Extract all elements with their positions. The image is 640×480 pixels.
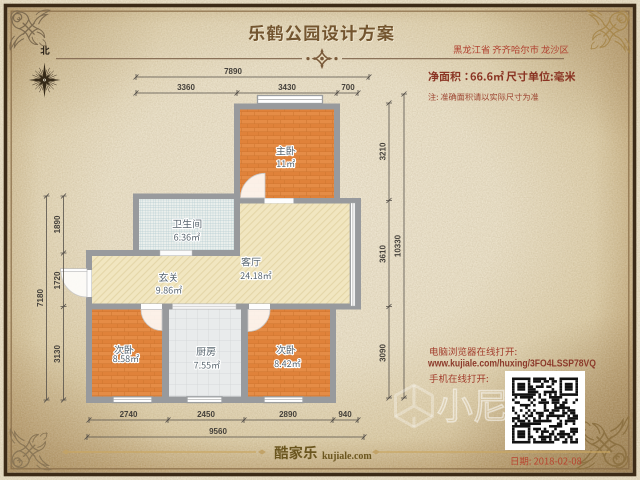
svg-text:2890: 2890 — [279, 410, 297, 419]
svg-text:10330: 10330 — [394, 234, 403, 257]
svg-text:7890: 7890 — [224, 67, 242, 76]
svg-text:kujiale.com: kujiale.com — [322, 451, 372, 462]
svg-text:1720: 1720 — [53, 271, 62, 289]
svg-text:3360: 3360 — [177, 83, 195, 92]
svg-text:3610: 3610 — [379, 245, 388, 263]
svg-text:7180: 7180 — [36, 289, 45, 307]
svg-text:3090: 3090 — [379, 344, 388, 362]
svg-text:2450: 2450 — [197, 410, 215, 419]
svg-text:700: 700 — [341, 83, 355, 92]
svg-text:3430: 3430 — [278, 83, 296, 92]
svg-text:2740: 2740 — [120, 410, 138, 419]
svg-text:9560: 9560 — [209, 427, 227, 436]
svg-text:940: 940 — [338, 410, 352, 419]
svg-text:1890: 1890 — [53, 215, 62, 233]
svg-text:www.kujiale.com/huxing/3FO4LSS: www.kujiale.com/huxing/3FO4LSSP78VQ — [427, 358, 596, 370]
svg-text:3130: 3130 — [53, 345, 62, 363]
svg-text:3210: 3210 — [379, 142, 388, 160]
